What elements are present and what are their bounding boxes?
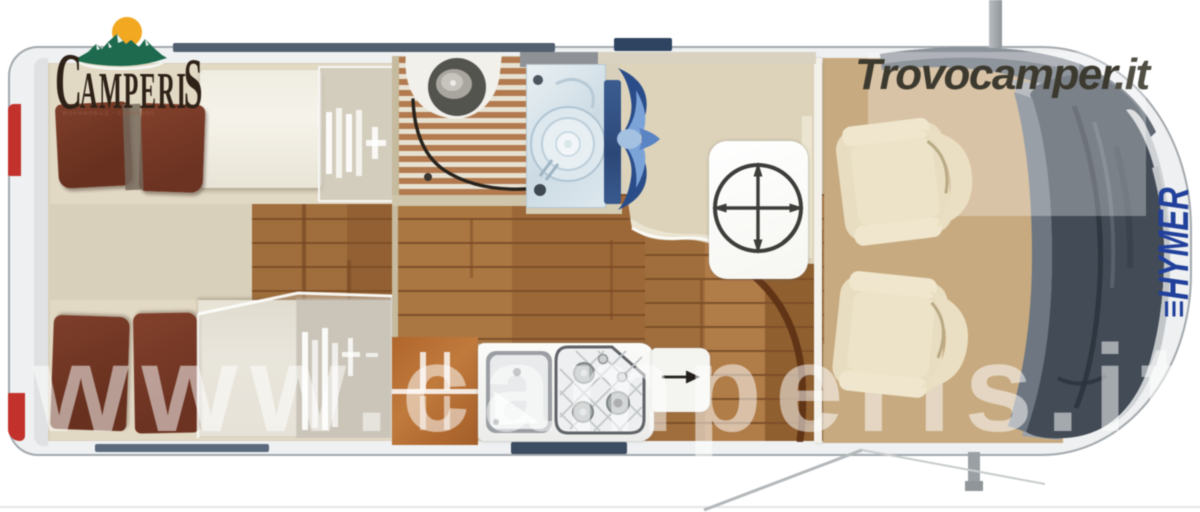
svg-text:S: S (184, 45, 203, 124)
svg-text:≡HYMER: ≡HYMER (1149, 187, 1197, 318)
